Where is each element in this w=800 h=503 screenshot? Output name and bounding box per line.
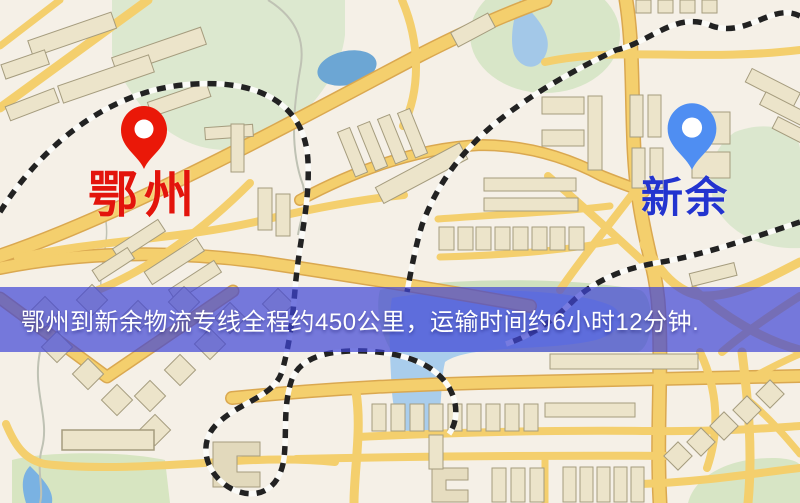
route-map: 鄂州 新余 鄂州到新余物流专线全程约450公里，运输时间约6小时12分钟. xyxy=(0,0,800,503)
map-canvas xyxy=(0,0,800,503)
route-banner-text: 鄂州到新余物流专线全程约450公里，运输时间约6小时12分钟. xyxy=(0,302,699,337)
destination-label: 新余 xyxy=(641,178,729,220)
route-banner: 鄂州到新余物流专线全程约450公里，运输时间约6小时12分钟. xyxy=(0,287,800,352)
origin-label: 鄂州 xyxy=(88,170,200,220)
